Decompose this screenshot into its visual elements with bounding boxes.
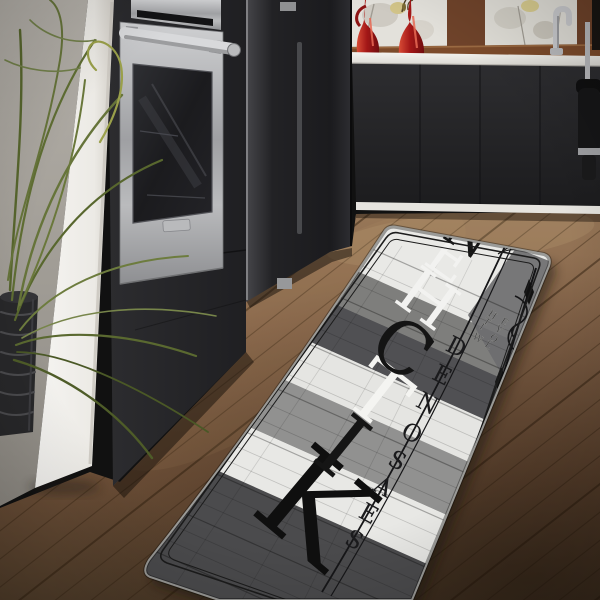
kitchen-photo: K I T C H E N SEASONED WITH LOVE (0, 0, 600, 600)
vignette (0, 0, 600, 600)
scene-root: K I T C H E N SEASONED WITH LOVE (0, 0, 600, 600)
